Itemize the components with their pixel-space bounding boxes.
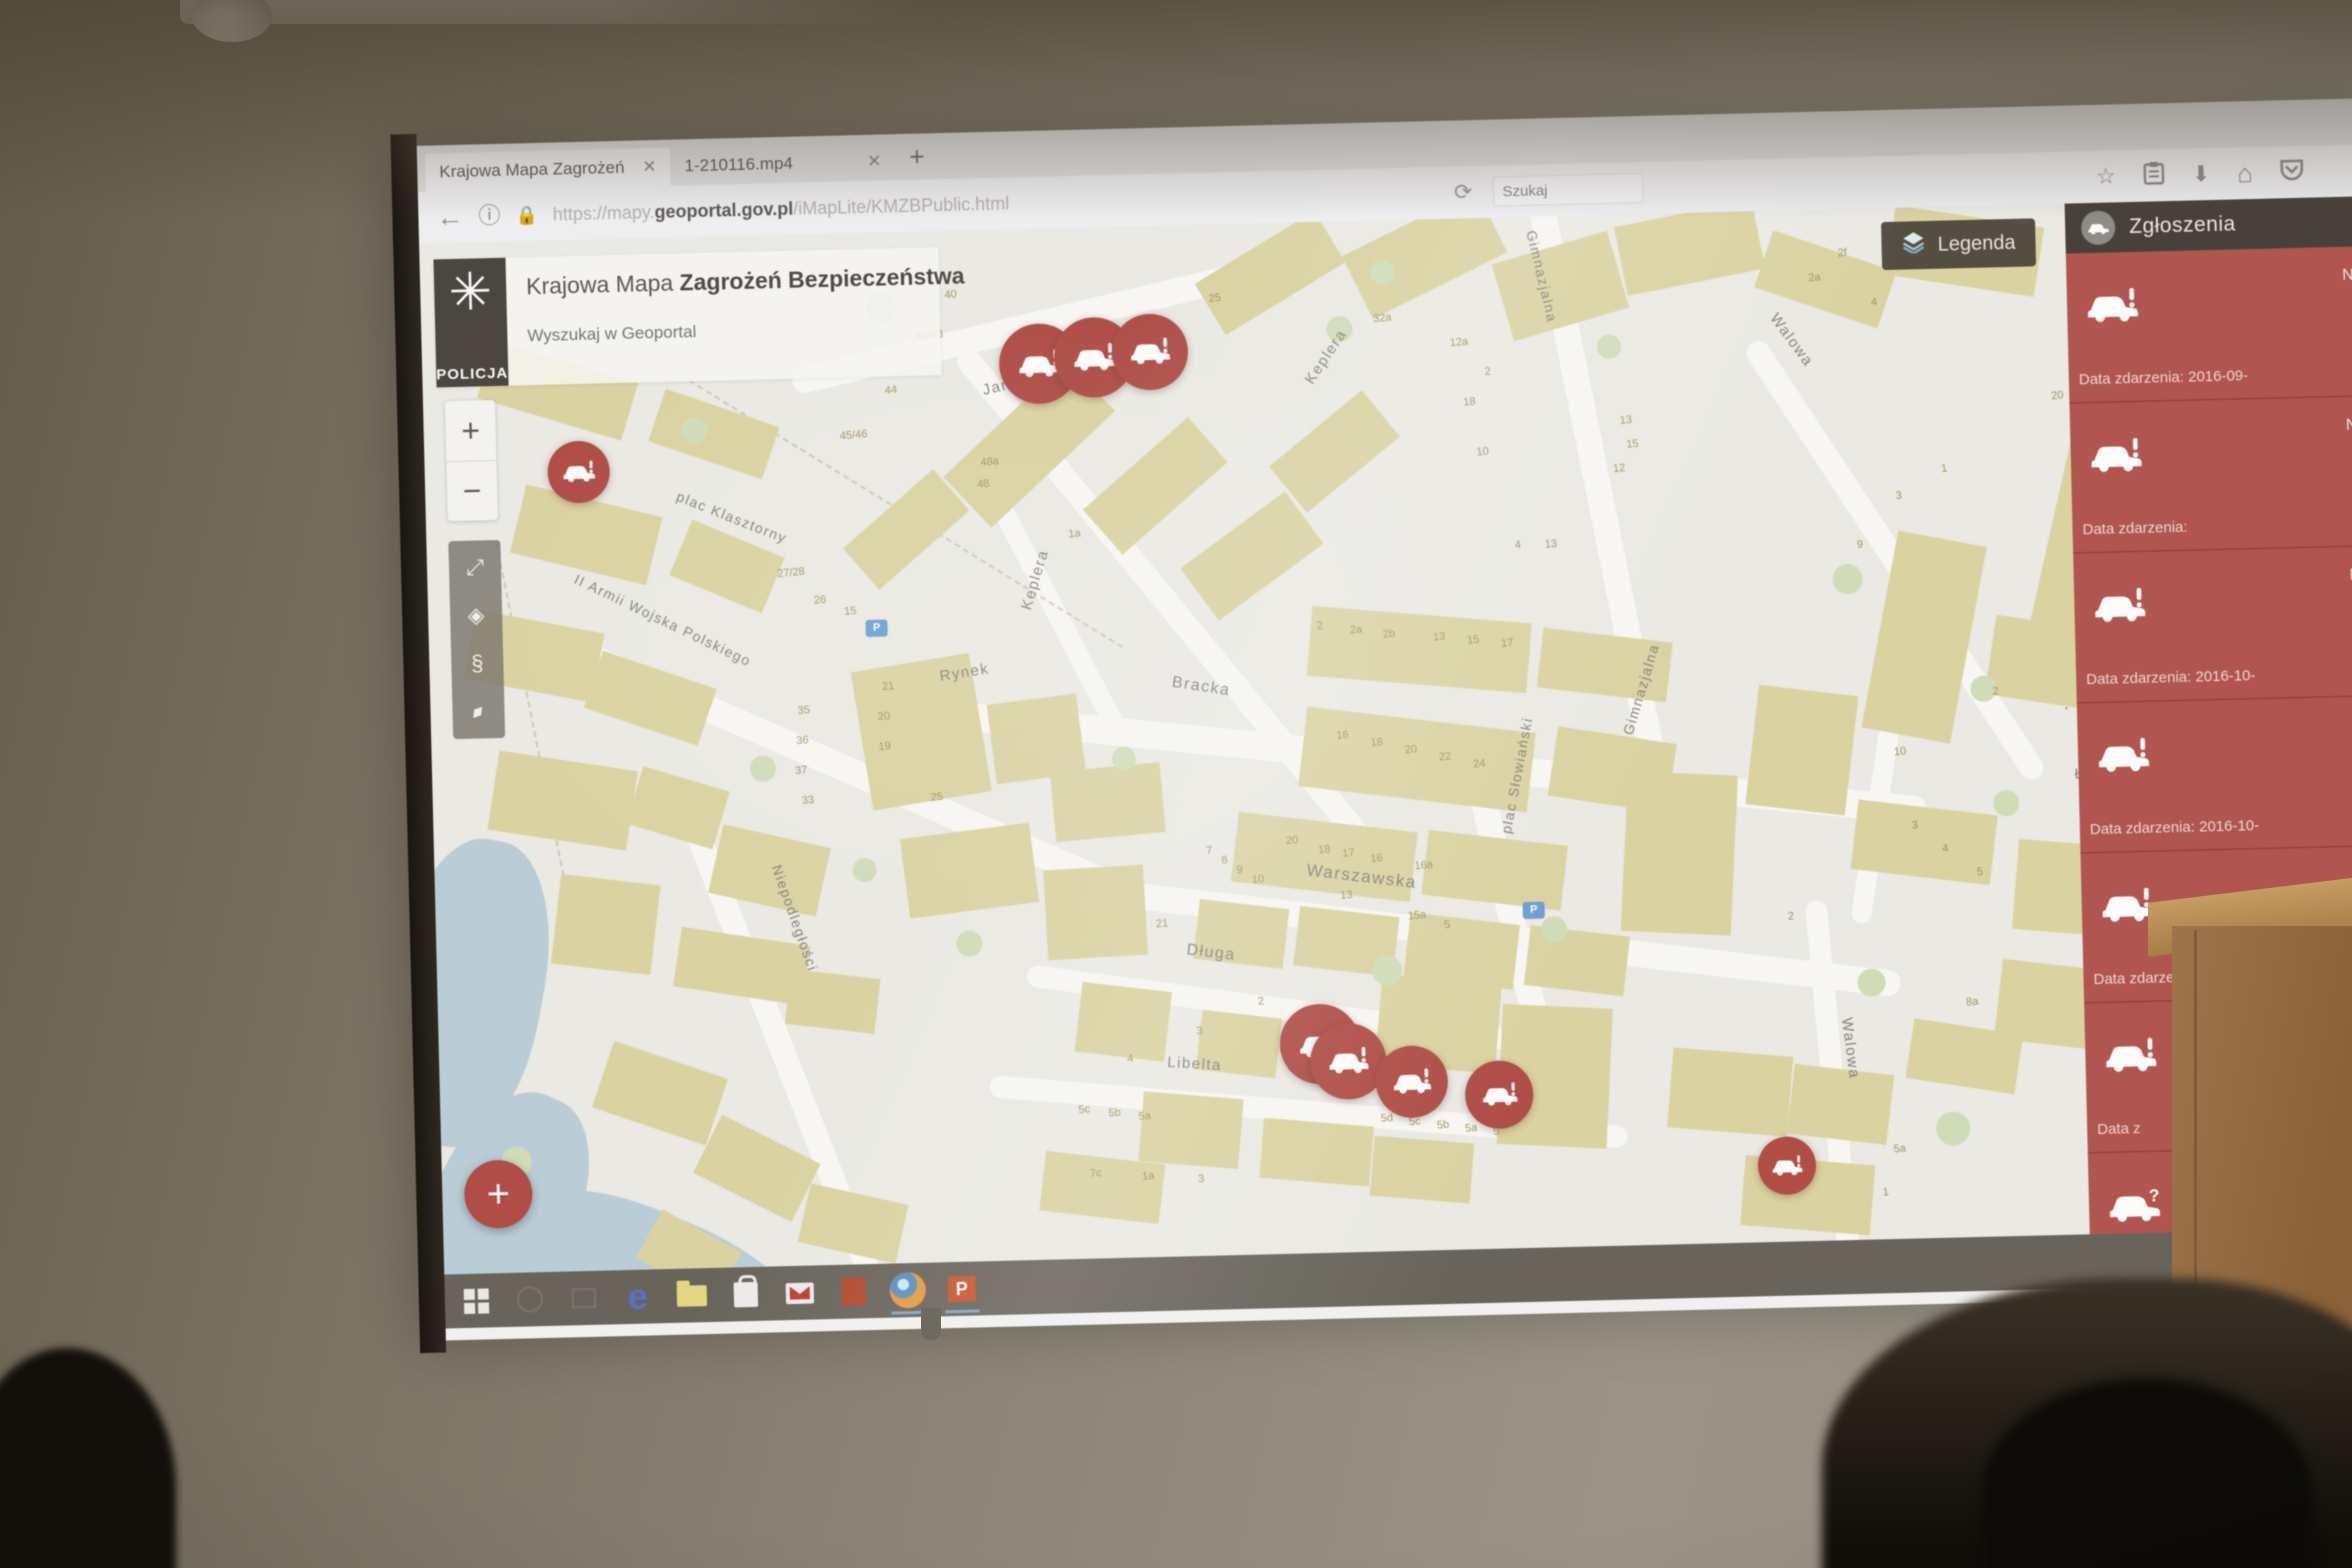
house-number: 32a	[1373, 311, 1392, 325]
map-building	[1667, 1047, 1793, 1136]
projector-screen-roller-cap	[192, 0, 272, 42]
map-building	[1621, 771, 1738, 936]
house-number: 13	[1432, 630, 1445, 643]
firefox-window: Krajowa Mapa Zagrożeń Bezp✕1-210116.mp4✕…	[417, 98, 2352, 1341]
report-date: Data z	[2097, 1120, 2141, 1138]
tab-title: Krajowa Mapa Zagrożeń Bezp	[439, 158, 624, 183]
house-number: 13	[1544, 538, 1557, 551]
geoportal-search-input[interactable]	[527, 318, 857, 346]
house-number: 18	[1370, 736, 1383, 749]
site-info-icon[interactable]: ⓘ	[478, 205, 501, 228]
map-building	[626, 766, 729, 849]
house-number: 5b	[1436, 1119, 1449, 1132]
map-building	[1259, 1118, 1373, 1187]
folder-shape	[677, 1285, 708, 1307]
legend-label: Legenda	[1937, 231, 2015, 256]
house-number: 10	[1476, 445, 1489, 458]
house-number: 1	[1940, 462, 1947, 475]
house-number: 10	[1893, 745, 1906, 758]
house-number: 17	[1501, 637, 1514, 650]
car-alert-icon	[2085, 288, 2140, 329]
house-number: 5a	[1893, 1142, 1906, 1155]
zoom-out-button[interactable]: −	[446, 460, 497, 521]
report-title: Niepr pa	[2345, 408, 2352, 476]
incident-marker-car[interactable]	[547, 440, 610, 503]
report-item[interactable]: Niep pData zdarzenia: 2016-10-	[2077, 696, 2352, 854]
report-item[interactable]: Niepr paData zdarzenia:	[2069, 396, 2352, 554]
taskbar-store-icon[interactable]	[726, 1275, 765, 1314]
house-number: 20	[877, 710, 890, 723]
firefox-globe-shape	[889, 1272, 926, 1309]
map-building	[1370, 1136, 1474, 1204]
house-number: 33	[801, 794, 814, 807]
house-number: 5a	[1138, 1110, 1151, 1123]
house-number: 18	[1318, 843, 1331, 856]
house-number: 2a	[1808, 271, 1821, 284]
taskbar-firefox-icon[interactable]	[888, 1271, 927, 1310]
cortana-circle	[517, 1286, 544, 1313]
policja-star-icon: ✳	[448, 264, 493, 322]
map-building	[785, 969, 881, 1034]
house-number: 7c	[1089, 1167, 1102, 1180]
map-tree	[1993, 790, 2020, 817]
house-number: 44	[884, 384, 897, 397]
library-clipboard-icon[interactable]	[2142, 161, 2165, 191]
toolbar-icons: ☆ ⬇ ⌂	[2096, 156, 2352, 192]
house-number: 1a	[1068, 527, 1081, 540]
house-number: 36	[796, 734, 809, 747]
house-number: 2	[1257, 995, 1264, 1008]
house-number: 15	[1626, 438, 1639, 451]
map-building	[1994, 959, 2090, 1050]
house-number: 15	[1467, 634, 1480, 647]
url-text[interactable]: https://mapy.geoportal.gov.pl/iMapLite/K…	[553, 193, 1010, 225]
house-number: 9	[1236, 864, 1243, 877]
house-number: 5b	[1108, 1107, 1121, 1120]
taskbar-taskview-icon[interactable]	[564, 1279, 603, 1318]
street-label: Keplera	[1302, 326, 1351, 387]
browser-tab[interactable]: Krajowa Mapa Zagrożeń Bezp✕	[425, 148, 671, 192]
house-number: 5d	[1380, 1112, 1393, 1125]
house-number: 25	[1208, 292, 1221, 305]
map-building	[1039, 1151, 1165, 1224]
house-number: 2	[1787, 910, 1794, 923]
map-building	[1342, 204, 1507, 319]
map-building	[1050, 762, 1166, 842]
house-number: 20	[1285, 834, 1298, 847]
house-number: 22	[1438, 750, 1451, 763]
house-number: 3	[1196, 1025, 1203, 1038]
map-building	[1862, 531, 1987, 744]
house-number: 1	[1882, 1186, 1889, 1199]
house-number: 48a	[980, 455, 999, 469]
house-number: 48	[977, 478, 990, 491]
map-canvas[interactable]: ✳ POLICJA Krajowa Mapa Zagrożeń Bezpiecz…	[419, 204, 2090, 1275]
policja-caption: POLICJA	[436, 365, 508, 384]
store-bag-shape	[734, 1281, 759, 1307]
house-number: 16	[1336, 729, 1349, 742]
report-date: Data zdarzenia: 2016-10-	[2086, 667, 2256, 688]
map-building	[1075, 982, 1172, 1062]
kmzb-header-panel: ✳ POLICJA Krajowa Mapa Zagrożeń Bezpiecz…	[433, 247, 941, 387]
house-number: 5	[1976, 866, 1983, 879]
edge-e-glyph: e	[627, 1276, 648, 1318]
photo-of-projection: Krajowa Mapa Zagrożeń Bezp✕1-210116.mp4✕…	[0, 0, 2352, 1568]
house-number: 2a	[1349, 624, 1362, 637]
house-number: 25	[930, 791, 943, 804]
zoom-in-button[interactable]: +	[445, 400, 496, 461]
policja-logo: ✳ POLICJA	[433, 258, 508, 388]
house-number: 26	[813, 594, 826, 607]
taskbar-adobe-icon[interactable]	[834, 1272, 873, 1311]
parking-info-icon: P	[1522, 902, 1544, 920]
projected-desktop: Krajowa Mapa Zagrożeń Bezp✕1-210116.mp4✕…	[391, 98, 2352, 1341]
house-number: 5	[1443, 919, 1450, 932]
back-icon[interactable]: ←	[436, 201, 464, 233]
mail-envelope-shape	[786, 1282, 815, 1304]
taskbar-explorer-icon[interactable]	[672, 1276, 711, 1315]
page-title: Krajowa Mapa Zagrożeń Bezpieczeństwa	[526, 263, 965, 301]
street-label: Libelta	[1167, 1054, 1223, 1074]
house-number: 8	[1221, 854, 1228, 867]
map-building	[1492, 231, 1630, 342]
house-number: 16	[1370, 852, 1383, 865]
home-icon[interactable]: ⌂	[2237, 160, 2253, 186]
report-item[interactable]: Niepr paData zdarzenia: 2016-09-	[2066, 246, 2352, 404]
screen-pull-tab	[921, 1308, 941, 1340]
reports-panel-header: Zgłoszenia	[2065, 196, 2352, 254]
map-building	[1421, 830, 1568, 911]
powerpoint-p-shape: P	[947, 1276, 976, 1303]
tab-title: 1-210116.mp4	[684, 154, 793, 177]
map-building	[1138, 1091, 1243, 1169]
tab-close-icon[interactable]: ✕	[867, 152, 882, 172]
new-tab-button[interactable]: +	[909, 141, 925, 172]
locate-icon[interactable]: ◈	[467, 604, 484, 626]
house-number: 10	[1251, 873, 1264, 886]
browser-search-input[interactable]	[1493, 173, 1644, 207]
projector-screen-roller	[180, 0, 940, 24]
pocket-icon[interactable]	[2280, 158, 2305, 186]
house-number: 4	[1127, 1052, 1134, 1065]
zoom-controls: + −	[445, 400, 498, 521]
house-number: 21	[1155, 917, 1168, 930]
house-number: 4	[1870, 296, 1877, 309]
taskbar-mail-icon[interactable]	[780, 1273, 819, 1312]
taskbar-edge-icon[interactable]: e	[618, 1277, 657, 1316]
map-building	[1745, 685, 1858, 816]
adobe-red-shape	[841, 1277, 866, 1306]
taskbar-powerpoint-icon[interactable]: P	[942, 1269, 981, 1308]
map-building	[584, 651, 717, 746]
house-number: 12a	[1449, 336, 1468, 350]
house-number: 21	[882, 680, 895, 693]
reload-icon[interactable]: ⟳	[1454, 181, 1473, 203]
section-sign-icon[interactable]: §	[471, 652, 484, 674]
map-building	[1180, 491, 1323, 620]
house-number: 15a	[1407, 909, 1426, 923]
bookmark-star-icon[interactable]: ☆	[2096, 165, 2116, 187]
house-number: 45/46	[839, 428, 868, 443]
house-number: 27/28	[777, 566, 806, 581]
house-number: 16a	[1414, 859, 1433, 873]
downloads-icon[interactable]: ⬇	[2191, 163, 2210, 185]
legend-button[interactable]: Legenda	[1881, 218, 2036, 270]
taskbar-cortana-icon[interactable]	[510, 1280, 549, 1319]
house-number: 2b	[1382, 628, 1395, 641]
house-number: 2f	[1837, 247, 1847, 260]
map-building	[900, 823, 1039, 919]
taskbar-start-icon[interactable]	[456, 1281, 495, 1320]
map-tree	[1936, 1111, 1971, 1146]
house-number: 3	[1198, 1173, 1205, 1186]
incident-marker-car[interactable]	[1111, 313, 1189, 391]
house-number: 18	[1463, 396, 1476, 409]
house-number: 2	[1484, 365, 1491, 378]
house-number: 5a	[1464, 1122, 1477, 1135]
map-tree	[956, 930, 983, 957]
house-number: 20	[2051, 389, 2064, 402]
map-building	[1195, 211, 1346, 335]
house-number: 12	[1612, 462, 1625, 475]
report-date: Data zdarzenia: 2016-10-	[2090, 817, 2260, 838]
map-building	[551, 874, 661, 975]
house-number: 37	[795, 764, 808, 777]
map-tree	[750, 755, 777, 782]
map-building	[798, 1183, 909, 1263]
map-building	[1614, 204, 1765, 296]
map-building	[592, 1041, 728, 1146]
house-number: 9	[1856, 538, 1863, 551]
house-number: 19	[878, 740, 891, 753]
tab-close-icon[interactable]: ✕	[642, 157, 657, 177]
incident-marker-car[interactable]	[1375, 1045, 1449, 1119]
house-number: 2	[1316, 620, 1323, 633]
house-number: 7	[1206, 844, 1213, 857]
tag-icon[interactable]: ⬧	[468, 700, 489, 723]
parking-info-icon: P	[865, 619, 887, 637]
house-number: 5c	[1078, 1103, 1091, 1116]
map-building	[1043, 865, 1148, 961]
car-alert-icon	[2099, 888, 2154, 929]
layers-icon	[1901, 231, 1926, 260]
car-alert-icon	[2092, 588, 2147, 629]
house-number: 1a	[1142, 1170, 1155, 1183]
house-number: 17	[1342, 847, 1355, 860]
house-number: 20	[1404, 743, 1417, 756]
house-number: 3	[1911, 819, 1918, 832]
map-building	[1269, 390, 1400, 513]
report-title: Niepr pa	[2342, 258, 2352, 326]
house-number: 24	[1473, 758, 1486, 771]
taskview-rect	[572, 1288, 596, 1309]
map-building	[1524, 925, 1630, 996]
browser-tab[interactable]: 1-210116.mp4✕	[670, 142, 896, 185]
car-alert-icon	[2088, 438, 2143, 479]
map-tree	[1832, 564, 1863, 595]
house-number: 4	[1514, 539, 1521, 552]
house-number: 4	[1942, 842, 1949, 855]
audience-silhouette-left	[0, 1348, 176, 1568]
house-number: 13	[1619, 414, 1632, 427]
fullscreen-icon[interactable]: ⤢	[466, 556, 484, 578]
page-content: ✳ POLICJA Krajowa Mapa Zagrożeń Bezpiecz…	[419, 196, 2352, 1275]
report-date: Data zdarzenia: 2016-09-	[2079, 367, 2249, 388]
house-number: 35	[797, 704, 810, 717]
map-building	[1083, 417, 1228, 555]
map-building	[1787, 1064, 1894, 1145]
map-tree	[1597, 334, 1622, 359]
ssl-lock-icon[interactable]: 🔒	[515, 204, 538, 226]
map-building	[488, 750, 638, 850]
report-date: Data zdarzenia:	[2082, 519, 2187, 539]
map-building	[2012, 839, 2090, 938]
house-number: 8a	[1966, 996, 1979, 1009]
map-tree	[852, 858, 877, 883]
map-building	[648, 389, 779, 479]
car-alert-icon	[2096, 738, 2151, 779]
house-number: 2	[1992, 685, 1999, 698]
report-item[interactable]: Niepr pData zdarzenia: 2016-10-	[2073, 546, 2352, 704]
map-toolbar: ⤢ ◈ § ⬧	[448, 540, 505, 739]
reports-title: Zgłoszenia	[2129, 212, 2236, 239]
house-number: 3	[1895, 489, 1902, 502]
house-number: 15	[844, 605, 857, 618]
car-badge-icon	[2081, 210, 2116, 245]
map-building	[1307, 606, 1532, 693]
house-number: 13	[1340, 889, 1353, 902]
